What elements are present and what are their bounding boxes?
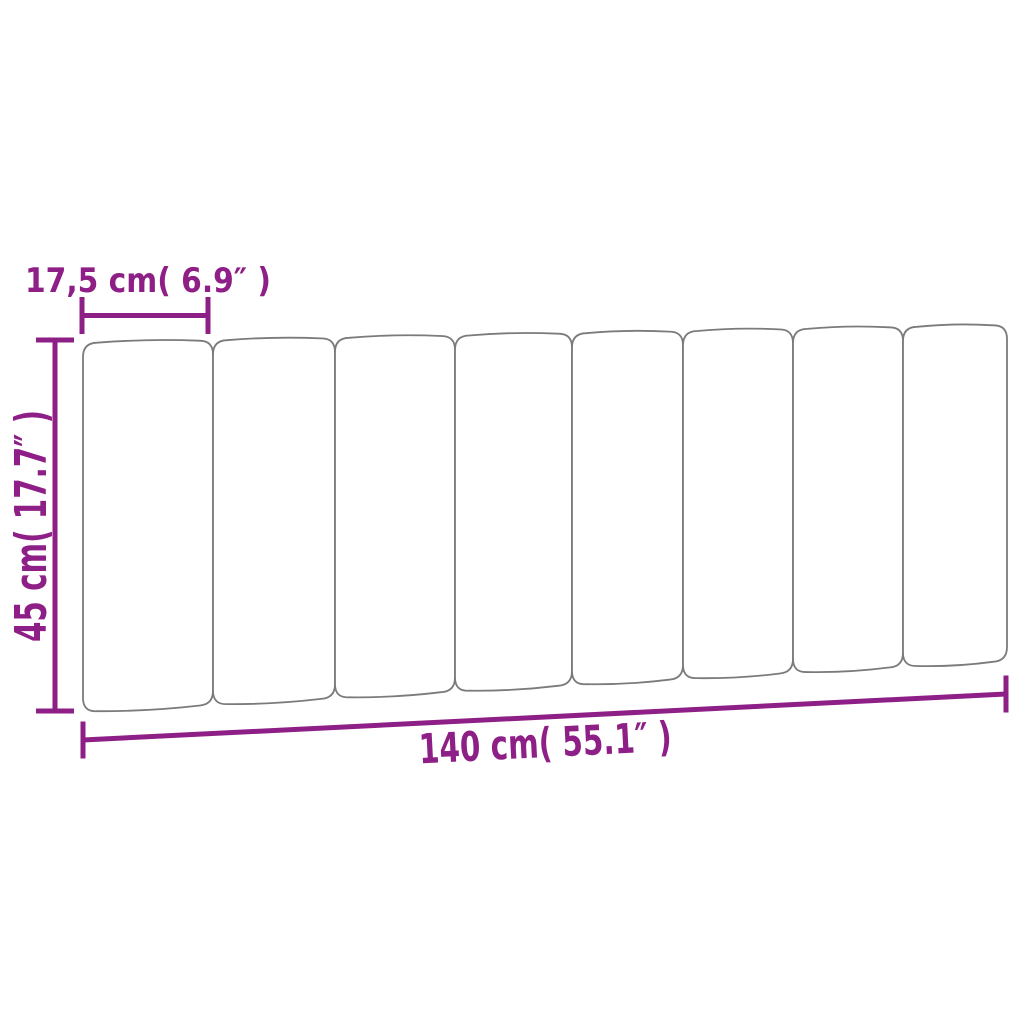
- headboard-panels: [83, 324, 1007, 711]
- diagram-canvas: 17,5 cm( 6.9″ ) 45 cm( 17.7″ ) 140 cm( 5…: [0, 0, 1024, 1024]
- headboard-panel: [213, 338, 335, 704]
- headboard-panel: [83, 340, 213, 711]
- dim-panel-width: 17,5 cm( 6.9″ ): [25, 261, 271, 334]
- dim-height: 45 cm( 17.7″ ): [6, 340, 74, 711]
- headboard-panel: [683, 329, 793, 679]
- headboard-panel: [455, 333, 572, 691]
- headboard-dimension-diagram: 17,5 cm( 6.9″ ) 45 cm( 17.7″ ) 140 cm( 5…: [0, 0, 1024, 1024]
- panel-width-label: 17,5 cm( 6.9″ ): [25, 261, 271, 301]
- height-label: 45 cm( 17.7″ ): [6, 410, 57, 642]
- headboard-panel: [793, 326, 903, 672]
- headboard-panel: [335, 335, 455, 697]
- headboard-panel: [572, 331, 683, 684]
- headboard-panel: [903, 324, 1007, 666]
